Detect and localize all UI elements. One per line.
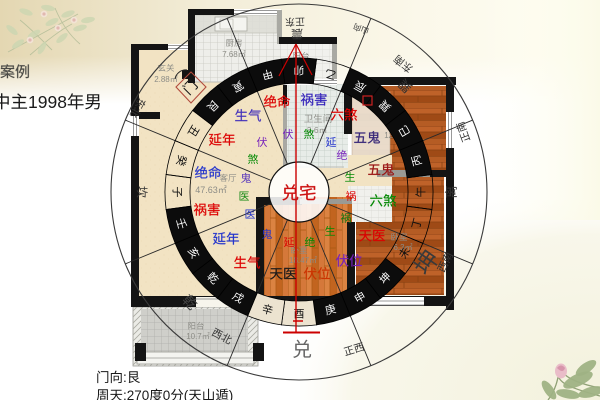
svg-text:): )	[229, 388, 234, 400]
svg-text:10.7: 10.7	[186, 332, 202, 341]
svg-text:47.63: 47.63	[195, 185, 218, 195]
svg-text:1998: 1998	[28, 92, 67, 112]
svg-text:0: 0	[163, 388, 171, 400]
svg-text::270: :270	[123, 388, 149, 400]
svg-text::: :	[123, 370, 127, 385]
svg-text:18.47: 18.47	[289, 256, 310, 265]
svg-text:2.88: 2.88	[154, 75, 170, 84]
svg-text:(: (	[184, 388, 189, 400]
svg-text:6.3: 6.3	[393, 243, 405, 252]
svg-text:7.68: 7.68	[222, 50, 238, 59]
